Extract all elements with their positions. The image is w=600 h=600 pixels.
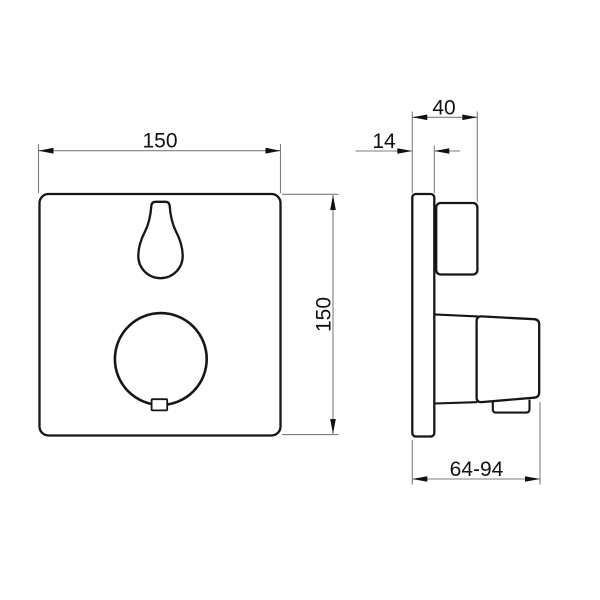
arrowhead-left-icon bbox=[434, 148, 449, 154]
technical-drawing-canvas: 150 150 40 14 bbox=[0, 0, 600, 600]
dim-plate-thickness: 14 bbox=[356, 130, 461, 193]
dim-front-width: 150 bbox=[39, 130, 281, 194]
arrowhead-down-icon bbox=[330, 419, 336, 434]
dim-front-height-label: 150 bbox=[313, 297, 336, 332]
arrowhead-right-icon bbox=[525, 476, 540, 482]
safety-stop-button-profile bbox=[493, 401, 530, 413]
dim-front-height: 150 bbox=[282, 194, 339, 434]
thermostat-knob-front bbox=[115, 313, 207, 405]
diverter-handle-profile bbox=[436, 203, 477, 275]
arrowhead-left-icon bbox=[412, 115, 427, 121]
knob-base-bottom-edge bbox=[434, 402, 476, 403]
faceplate-profile bbox=[412, 194, 434, 437]
front-view bbox=[40, 194, 281, 436]
thermostat-knob-profile bbox=[477, 316, 540, 402]
arrowhead-up-icon bbox=[330, 195, 336, 210]
mixer-installation-drawing: 150 150 40 14 bbox=[0, 0, 600, 600]
dim-front-width-label: 150 bbox=[142, 130, 177, 153]
knob-base-top-edge bbox=[434, 314, 477, 316]
arrowhead-left-icon bbox=[412, 476, 427, 482]
arrowhead-right-icon bbox=[266, 148, 281, 154]
dim-total-depth-label: 40 bbox=[432, 97, 455, 120]
safety-stop-button-front bbox=[152, 399, 168, 410]
side-view bbox=[412, 194, 539, 437]
arrowhead-left-icon bbox=[39, 148, 54, 154]
arrowhead-right-icon bbox=[462, 115, 477, 121]
arrowhead-right-icon bbox=[397, 148, 412, 154]
dim-installation-depth-label: 64-94 bbox=[450, 458, 504, 481]
dim-plate-thickness-label: 14 bbox=[372, 130, 396, 153]
